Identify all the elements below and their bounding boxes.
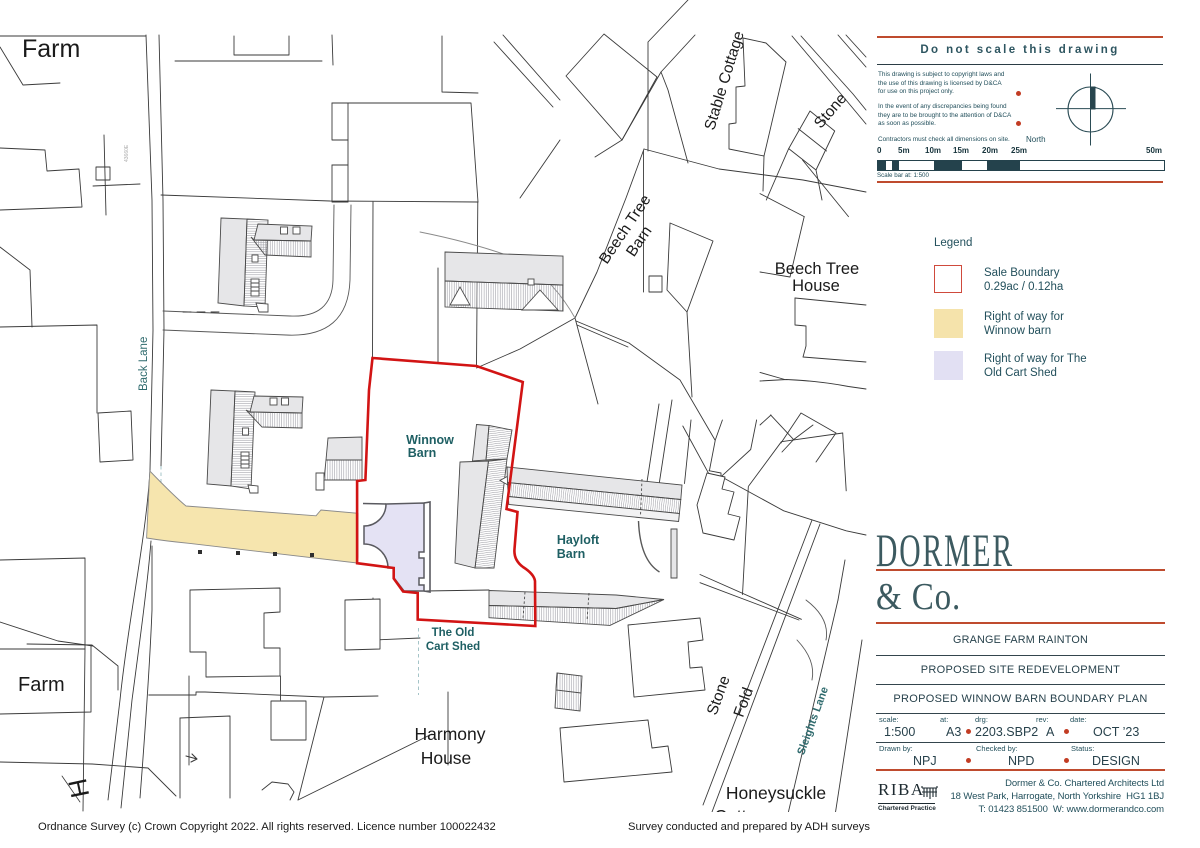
svg-text:Stone: Stone [811, 90, 850, 132]
svg-text:Cart Shed: Cart Shed [426, 641, 480, 653]
svg-text:House: House [421, 748, 472, 768]
svg-text:Honeysuckle: Honeysuckle [726, 783, 826, 803]
svg-text:H: H [62, 776, 95, 801]
svg-text:Barn: Barn [557, 547, 585, 561]
svg-text:Survey conducted and prepared: Survey conducted and prepared by ADH sur… [628, 821, 870, 833]
svg-text:43660E: 43660E [124, 144, 130, 162]
svg-text:Farm: Farm [18, 674, 65, 696]
svg-text:Hayloft: Hayloft [557, 533, 600, 547]
svg-text:Ordnance Survey (c) Crown Copy: Ordnance Survey (c) Crown Copyright 2022… [38, 821, 496, 833]
svg-text:House: House [792, 277, 840, 295]
svg-text:Harmony: Harmony [415, 724, 486, 744]
svg-text:Winnow: Winnow [406, 433, 454, 447]
svg-text:Sleights Lane: Sleights Lane [795, 685, 831, 756]
svg-text:Beech Tree: Beech Tree [775, 260, 859, 278]
svg-text:Stone: Stone [704, 674, 734, 718]
svg-text:Back Lane: Back Lane [138, 337, 150, 391]
svg-text:Barn: Barn [408, 446, 436, 460]
svg-text:Farm: Farm [22, 35, 80, 63]
svg-text:The Old: The Old [432, 627, 475, 639]
